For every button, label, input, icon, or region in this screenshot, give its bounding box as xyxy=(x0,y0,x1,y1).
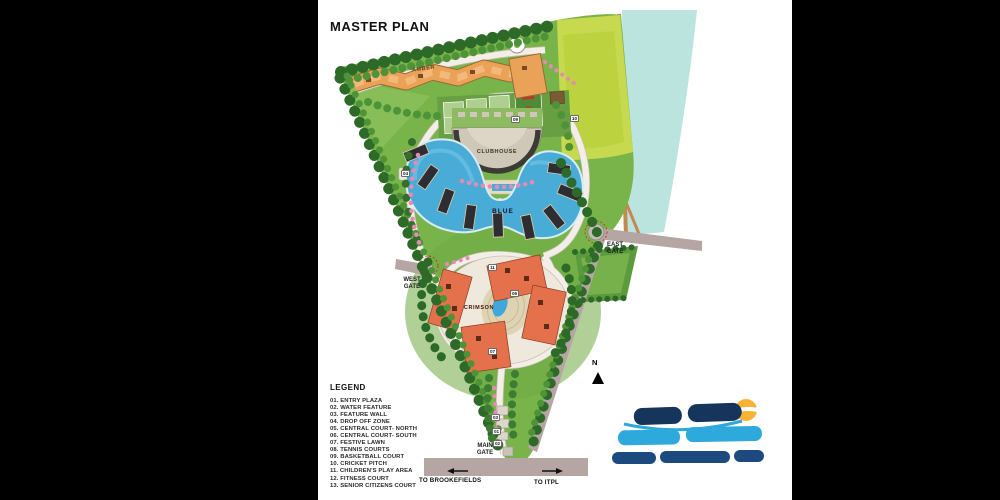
legend-item: 06. CENTRAL COURT- SOUTH xyxy=(330,433,450,440)
east-gate-label: EAST GATE xyxy=(607,242,635,255)
zone-label-blue: BLUE xyxy=(486,208,520,215)
developer-logo xyxy=(612,399,764,464)
legend-item: 12. FITNESS COURT xyxy=(330,476,450,483)
west-gate-label: WEST GATE xyxy=(398,277,426,290)
legend-list: 01. ENTRY PLAZA 02. WATER FEATURE 03. FE… xyxy=(330,398,450,490)
marker-07: 07 xyxy=(488,348,497,355)
legend-item: 13. SENIOR CITIZENS COURT xyxy=(330,483,450,490)
marker-09: 09 xyxy=(511,116,520,123)
marker-04: 04 xyxy=(401,170,410,177)
zone-label-clubhouse: CLUBHOUSE xyxy=(468,149,526,155)
legend-item: 02. WATER FEATURE xyxy=(330,405,450,412)
marker-01: 01 xyxy=(492,428,501,435)
legend-item: 07. FESTIVE LAWN xyxy=(330,440,450,447)
legend-item: 01. ENTRY PLAZA xyxy=(330,398,450,405)
marker-11: 11 xyxy=(488,264,497,271)
marker-03: 03 xyxy=(491,414,500,421)
north-arrow-icon xyxy=(592,372,604,384)
lake-water xyxy=(622,10,697,236)
legend-item: 05. CENTRAL COURT- NORTH xyxy=(330,426,450,433)
page-title: MASTER PLAN xyxy=(330,19,429,34)
masterplan-canvas: MASTER PLAN AMBER CLUBHOUSE BLUE CRIMSON… xyxy=(0,0,1000,500)
zone-label-crimson: CRIMSON xyxy=(460,305,498,311)
legend-item: 09. BASKETBALL COURT xyxy=(330,454,450,461)
legend-item: 11. CHILDREN'S PLAY AREA xyxy=(330,468,450,475)
legend-item: 03. FEATURE WALL xyxy=(330,412,450,419)
marker-06: 06 xyxy=(510,290,519,297)
legend-item: 08. TENNIS COURTS xyxy=(330,447,450,454)
north-label: N xyxy=(592,358,597,367)
legend-title: LEGEND xyxy=(330,383,450,392)
direction-itpl: TO ITPL xyxy=(534,479,559,486)
legend-item: 04. DROP OFF ZONE xyxy=(330,419,450,426)
legend: LEGEND 01. ENTRY PLAZA 02. WATER FEATURE… xyxy=(330,383,450,490)
marker-10: 10 xyxy=(570,115,579,122)
legend-item: 10. CRICKET PITCH xyxy=(330,461,450,468)
marker-02: 02 xyxy=(493,440,502,447)
site-plan-artwork xyxy=(0,0,1000,500)
